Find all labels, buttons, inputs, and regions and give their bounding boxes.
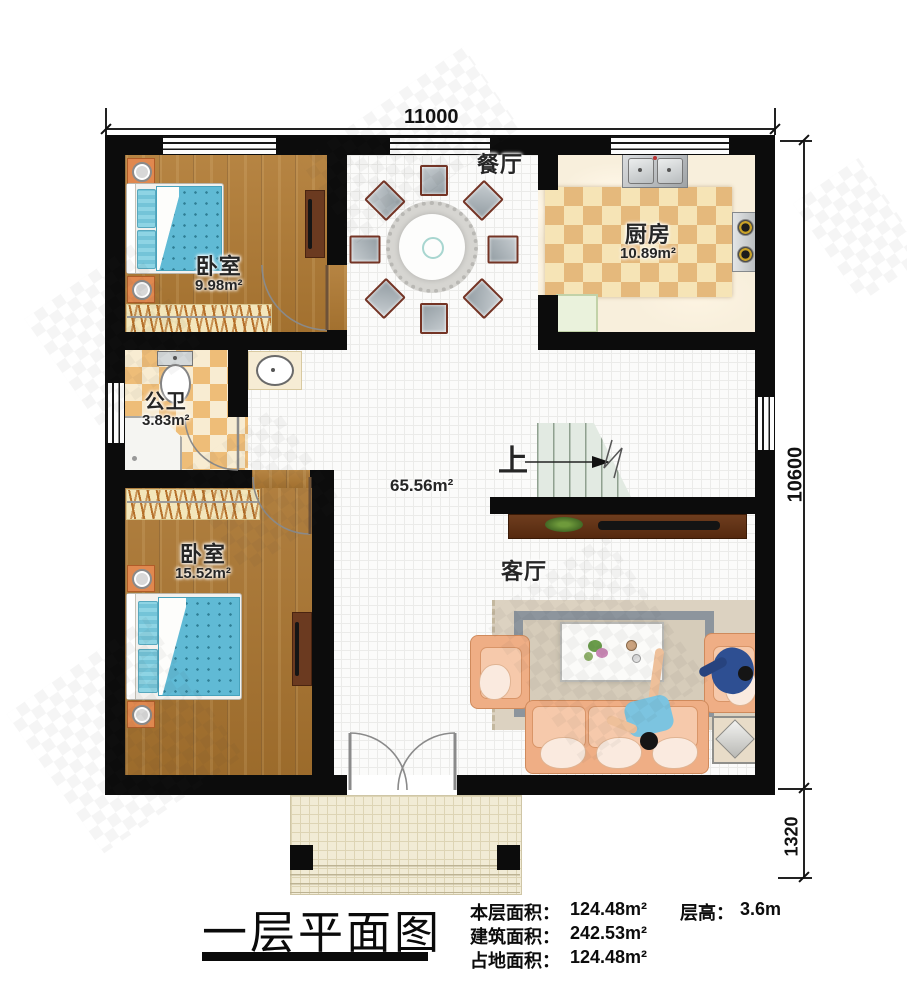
- stat-building-area: 建筑面积：242.53m²: [470, 923, 647, 949]
- dim-right-value: 10600: [784, 447, 807, 503]
- label-bedroom-top: 卧室 9.98m²: [195, 255, 243, 294]
- label-bedroom-bottom: 卧室 15.52m²: [175, 543, 231, 582]
- label-dining: 餐厅: [477, 153, 523, 176]
- floor-plan-canvas: 卧室 9.98m² 餐厅 厨房 10.89m² 公卫 3.83m² 卧室 15.…: [0, 0, 907, 992]
- label-bathroom: 公卫 3.83m²: [142, 392, 190, 429]
- dim-ext-right-mid: [778, 788, 812, 790]
- dim-porch-value: 1320: [782, 816, 803, 856]
- stat-floor-area: 本层面积：124.48m²: [470, 899, 647, 925]
- label-stairs-up: 上: [498, 446, 528, 478]
- stat-land-area: 占地面积：124.48m²: [470, 947, 647, 973]
- label-kitchen: 厨房 10.89m²: [620, 223, 676, 262]
- stat-floor-height: 层高：3.6m: [680, 899, 781, 925]
- label-hall-area: 65.56m²: [390, 477, 453, 495]
- doors-and-arrows: [0, 0, 907, 992]
- title-underline: [202, 952, 428, 961]
- dim-ext-right-top: [780, 140, 812, 142]
- dim-top-value: 11000: [404, 106, 459, 129]
- dim-line-right-porch: [803, 788, 805, 878]
- label-living: 客厅: [501, 560, 547, 583]
- dim-ext-right-bottom: [778, 877, 812, 879]
